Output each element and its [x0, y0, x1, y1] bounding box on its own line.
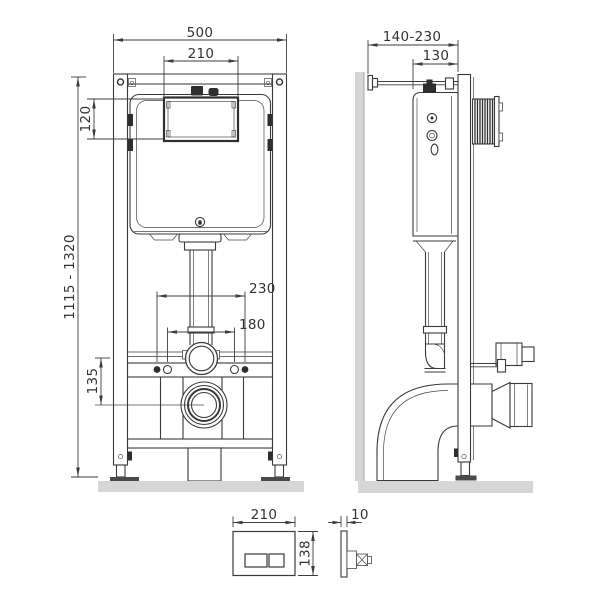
fixing-stud [231, 366, 239, 374]
side-view: 140-230 130 [355, 29, 534, 493]
dim-wall-distance: 140-230 [383, 29, 442, 45]
dim-drain-axis-height: 135 [85, 368, 101, 395]
foot-left [117, 465, 126, 477]
foot-right [275, 465, 284, 477]
technical-drawing-page: 500 210 120 1115 - 1320 [0, 0, 600, 600]
dim-plate-width: 210 [251, 507, 278, 523]
dim-window-width: 210 [188, 46, 215, 62]
inlet-cap [209, 88, 219, 96]
front-rail-right [273, 74, 287, 465]
front-cistern [128, 86, 273, 250]
dim-fixing-outer: 230 [249, 281, 276, 297]
side-flush-pipe [424, 252, 447, 372]
drain-outlet-box [188, 448, 221, 481]
corrugated-sleeve [473, 97, 503, 147]
dim-plate-height: 138 [298, 540, 314, 567]
floor-front [98, 481, 304, 492]
flush-bend [186, 343, 218, 375]
dim-overall-width: 500 [187, 25, 214, 41]
fill-valve-cap [191, 86, 203, 96]
wall-surface [355, 72, 364, 481]
dim-frame-depth: 130 [423, 48, 450, 64]
front-dimensions: 500 210 120 1115 - 1320 [62, 25, 287, 477]
side-valve-cap [423, 84, 436, 94]
side-connectors [471, 343, 535, 372]
service-window [164, 98, 238, 142]
side-foot [461, 462, 470, 476]
dim-fixing-inner: 180 [239, 317, 266, 333]
dim-installation-height: 1115 - 1320 [62, 234, 78, 319]
side-cistern [413, 80, 458, 253]
flush-plate-side [341, 531, 347, 577]
front-rail-left [114, 74, 128, 465]
fixing-stud [164, 366, 172, 374]
drain-cone [492, 383, 510, 429]
fixing-stud [242, 366, 249, 373]
flush-plate-views: 210 138 10 [233, 507, 372, 577]
floor-side [358, 481, 533, 493]
dim-window-height: 120 [78, 106, 94, 133]
side-dimensions: 140-230 130 [368, 29, 458, 89]
installation-frame-drawing: 500 210 120 1115 - 1320 [0, 0, 600, 600]
dim-plate-thickness: 10 [351, 507, 369, 523]
front-view: 500 210 120 1115 - 1320 [62, 25, 304, 492]
side-drain [377, 383, 532, 481]
fixing-stud [154, 366, 161, 373]
